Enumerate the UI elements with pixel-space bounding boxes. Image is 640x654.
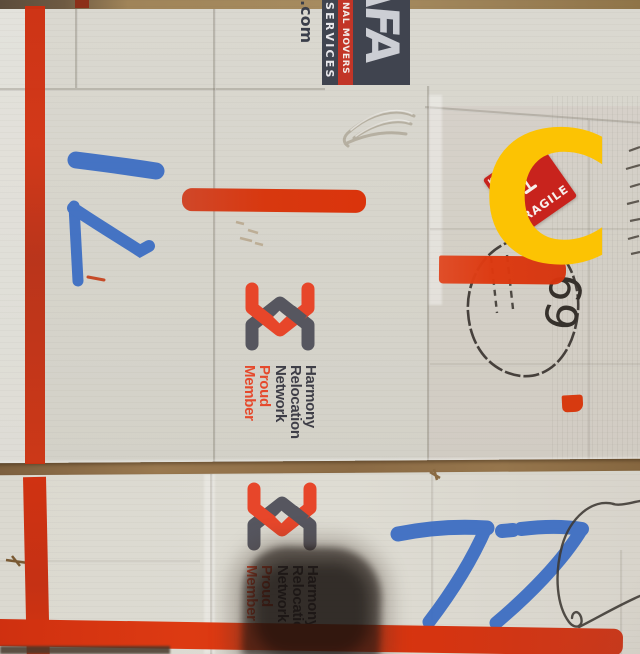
- harmony-line: Harmony: [303, 365, 318, 439]
- crease-line: [430, 228, 640, 231]
- crease-line: [431, 474, 434, 620]
- crease-line: [588, 120, 591, 460]
- harmony-knot-icon: [241, 278, 319, 356]
- upper-box-left-edge: [0, 9, 25, 463]
- crease-line: [213, 9, 216, 462]
- crease-line: [0, 88, 325, 91]
- afa-logo-letters: AFA: [353, 0, 410, 85]
- afa-logo-navy-block: AFA NAL MOVERS SERVICES: [322, 0, 410, 85]
- photo-canvas: AFA NAL MOVERS SERVICES .com Harmony Rel…: [0, 0, 640, 654]
- fragile-corner-text: KI: [486, 174, 500, 187]
- afa-services-text: SERVICES: [322, 0, 338, 85]
- afa-domain-text: .com: [297, 0, 315, 85]
- harmony-line: Network: [272, 365, 287, 439]
- broken-glass-icon: [502, 157, 546, 203]
- tape-top-edge-fragment: [75, 0, 89, 8]
- crease-line: [430, 363, 640, 366]
- harmony-line-proud: Proud: [257, 365, 272, 439]
- harmony-logo-upper: Harmony Relocation Network Proud Member: [238, 278, 322, 460]
- tape-small-dash: [562, 394, 584, 412]
- afa-movers-stripe: NAL MOVERS: [338, 0, 353, 85]
- harmony-logo-text: Harmony Relocation Network Proud Member: [242, 365, 318, 439]
- afa-movers-logo: AFA NAL MOVERS SERVICES .com: [297, 0, 410, 85]
- harmony-line: Relocation: [288, 365, 303, 439]
- bottom-edge-shadow: [0, 646, 170, 654]
- harmony-line-member: Member: [242, 365, 257, 439]
- tape-middle-horizontal: [182, 188, 366, 213]
- tape-left-vertical-upper: [25, 6, 45, 464]
- tape-right-horizontal: [439, 255, 566, 284]
- crease-line: [75, 9, 78, 88]
- phone-shadow-core: [254, 562, 370, 654]
